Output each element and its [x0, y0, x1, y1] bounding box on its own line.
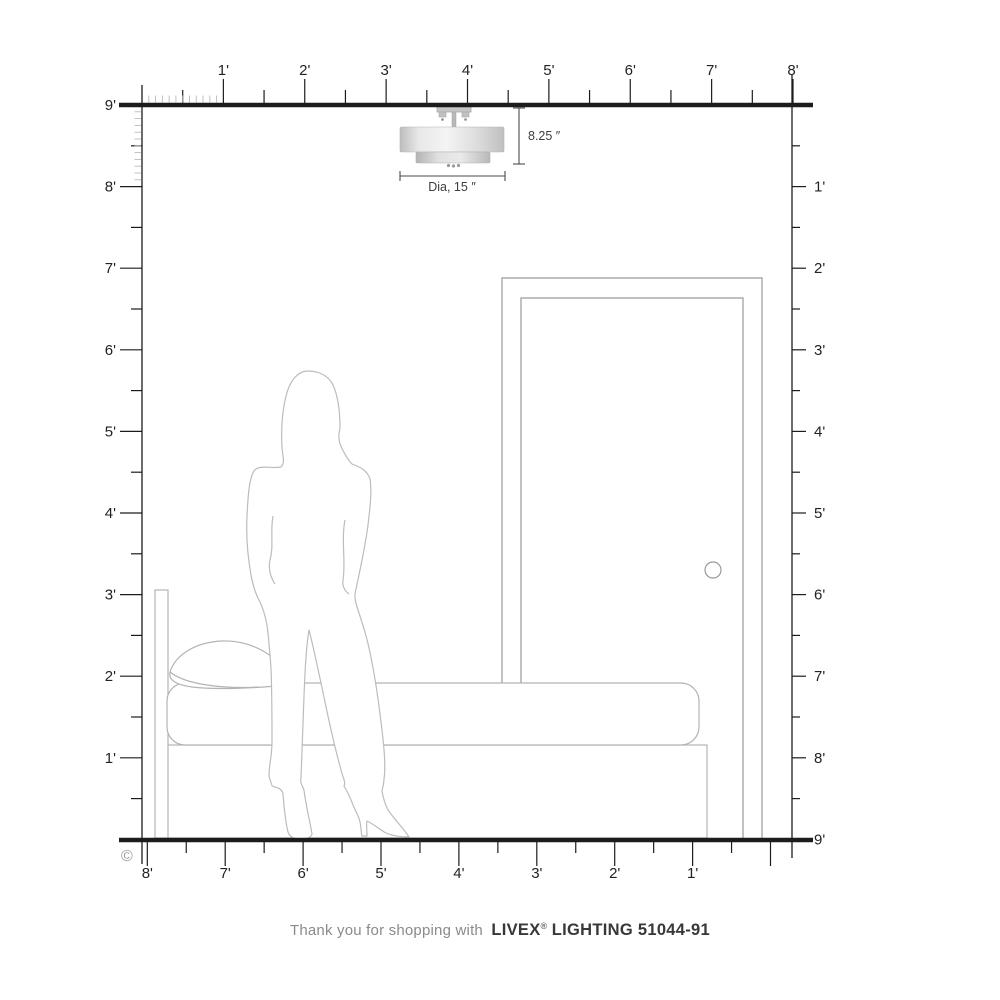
ruler-label: 6'	[297, 865, 308, 882]
bed-base	[167, 745, 707, 838]
brand-name: LIVEX	[491, 921, 540, 939]
copyright-symbol: ©	[121, 848, 133, 865]
ruler-label: 2'	[105, 668, 116, 685]
ruler-label: 8'	[105, 179, 116, 196]
product-model: LIGHTING 51044-91	[552, 921, 710, 939]
ruler-label: 8'	[787, 62, 798, 79]
footer-text: Thank you for shopping with LIVEX® LIGHT…	[0, 921, 1000, 940]
finial-dot-3	[457, 164, 460, 167]
ruler-label: 2'	[814, 260, 825, 277]
ruler-label: 2'	[299, 62, 310, 79]
ruler-label: 9'	[814, 831, 825, 848]
diameter-dimension: Dia, 15 ″	[400, 171, 505, 194]
ruler-label: 7'	[220, 865, 231, 882]
diameter-dimension-label: Dia, 15 ″	[428, 180, 476, 194]
canopy-right-nub	[462, 112, 469, 117]
finial-dot-2	[452, 164, 455, 167]
ruler-label: 6'	[625, 62, 636, 79]
ruler-label: 6'	[105, 342, 116, 359]
registered-mark: ®	[541, 921, 548, 931]
ruler-label: 5'	[105, 423, 116, 440]
ruler-label: 7'	[105, 260, 116, 277]
ruler-label: 9'	[105, 97, 116, 114]
footer-thank-you: Thank you for shopping with	[290, 922, 483, 939]
ceiling-light-fixture	[400, 106, 504, 168]
ruler-label: 7'	[814, 668, 825, 685]
door-knob	[705, 562, 721, 578]
canopy-bolt-right	[464, 118, 467, 121]
mattress	[167, 683, 699, 745]
ruler-label: 5'	[814, 505, 825, 522]
ruler-label: 1'	[814, 179, 825, 196]
ruler-label: 3'	[105, 587, 116, 604]
ruler-label: 6'	[814, 587, 825, 604]
drum-shade	[400, 127, 504, 152]
ruler-label: 2'	[609, 865, 620, 882]
ruler-label: 5'	[375, 865, 386, 882]
ruler-label: 3'	[531, 865, 542, 882]
ruler-label: 4'	[462, 62, 473, 79]
ruler-label: 3'	[381, 62, 392, 79]
stem	[452, 112, 456, 128]
canopy-left-nub	[439, 112, 446, 117]
height-dimension: 8.25 ″	[513, 108, 561, 164]
canopy-bolt-left	[441, 118, 444, 121]
ruler-label: 3'	[814, 342, 825, 359]
headboard-post	[155, 590, 168, 838]
ruler-label: 8'	[142, 865, 153, 882]
ruler-label: 7'	[706, 62, 717, 79]
ruler-label: 4'	[453, 865, 464, 882]
ruler-label: 5'	[543, 62, 554, 79]
finial-dot-1	[447, 164, 450, 167]
ruler-label: 4'	[105, 505, 116, 522]
ruler-label: 1'	[105, 750, 116, 767]
scale-diagram-page: 8.25 ″ Dia, 15 ″ 1'2'3'4'5'6'7'8'9'8'7'6…	[0, 0, 1000, 1000]
diffuser-tier	[416, 152, 490, 163]
height-dimension-label: 8.25 ″	[528, 129, 561, 143]
ruler-label: 4'	[814, 423, 825, 440]
ruler-label: 1'	[687, 865, 698, 882]
room-scale-diagram: 8.25 ″ Dia, 15 ″ 1'2'3'4'5'6'7'8'9'8'7'6…	[0, 0, 1000, 1000]
ruler-label: 8'	[814, 750, 825, 767]
ruler-label: 1'	[218, 62, 229, 79]
